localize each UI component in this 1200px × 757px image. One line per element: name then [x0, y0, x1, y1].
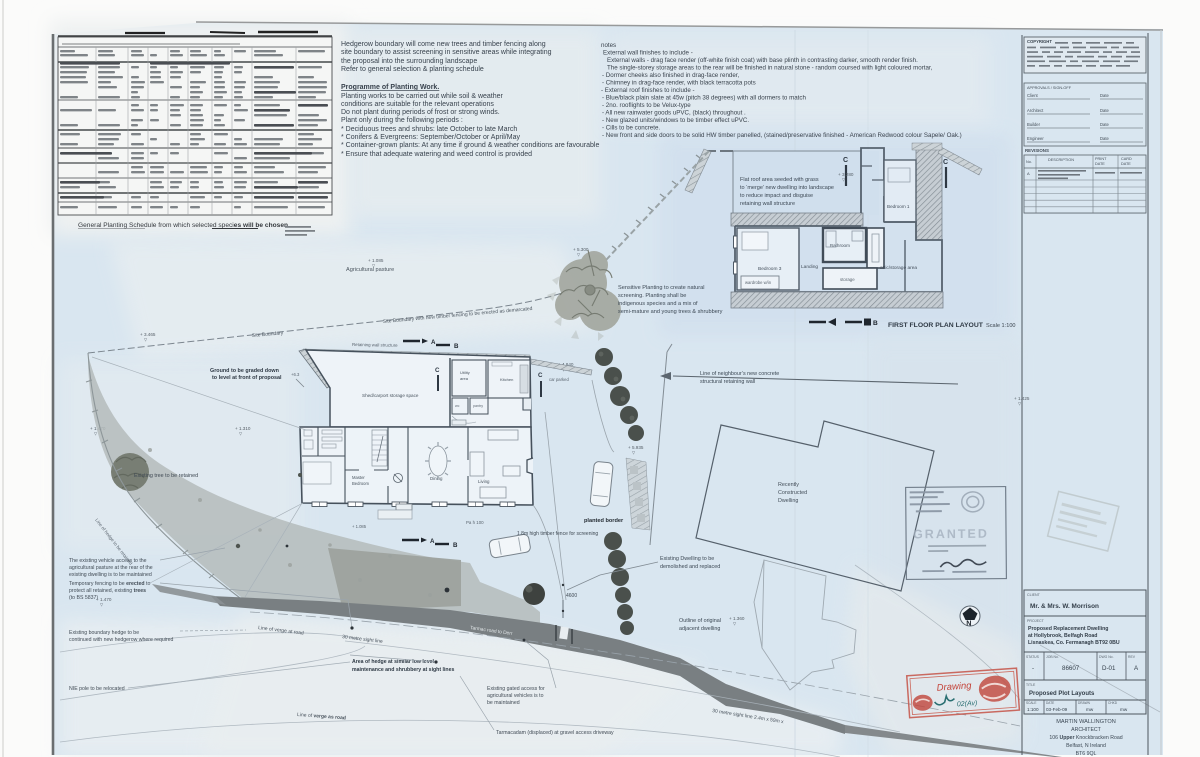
svg-text:pantry: pantry: [473, 404, 483, 408]
svg-text:* Deciduous trees and shrubs:: * Deciduous trees and shrubs: late Octob…: [341, 126, 517, 133]
svg-text:Sensitive Planting to create n: Sensitive Planting to create natural: [618, 285, 704, 291]
svg-text:+ 1.360: + 1.360: [729, 616, 745, 621]
svg-text:- 2no. rooflights to be Velux-: - 2no. rooflights to be Velux-type: [602, 102, 691, 109]
svg-text:1:100: 1:100: [1027, 707, 1039, 712]
svg-text:REV: REV: [1128, 655, 1136, 659]
svg-text:Master: Master: [352, 475, 365, 480]
svg-text:C: C: [538, 372, 543, 379]
svg-text:- New front and side doors to: - New front and side doors to be solid H…: [602, 132, 962, 139]
svg-text:Builder: Builder: [1027, 122, 1041, 127]
svg-text:Belfast, N Ireland: Belfast, N Ireland: [1066, 743, 1106, 749]
svg-text:agricultural vehicles is to: agricultural vehicles is to: [487, 693, 544, 699]
svg-text:Programme of Planting Work.: Programme of Planting Work.: [341, 84, 439, 91]
svg-text:STATUS: STATUS: [1026, 655, 1040, 659]
svg-text:Agricultural pasture: Agricultural pasture: [346, 267, 394, 273]
svg-text:- All new rainwater goods uPVC: - All new rainwater goods uPVC, (black) …: [602, 110, 746, 117]
svg-text:SCALE: SCALE: [1026, 701, 1036, 705]
svg-text:Proposed Plot Layouts: Proposed Plot Layouts: [1029, 691, 1095, 697]
svg-text:demolished and replaced: demolished and replaced: [660, 564, 720, 570]
svg-text:car parked: car parked: [549, 377, 569, 382]
svg-text:Bedroom 1: Bedroom 1: [887, 204, 910, 209]
svg-text:structural retaining wall: structural retaining wall: [700, 379, 755, 385]
svg-text:+ 1.085: + 1.085: [368, 258, 384, 263]
svg-text:CHKD: CHKD: [1108, 701, 1118, 705]
svg-text:- Blue/black plain slate at 45: - Blue/black plain slate at 45w (pitch 3…: [602, 95, 806, 102]
svg-text:TITLE: TITLE: [1026, 683, 1036, 687]
svg-text:JOB No.: JOB No.: [1046, 655, 1059, 659]
svg-text:The existing vehicle access to: The existing vehicle access to the: [69, 558, 147, 564]
svg-text:at Hollybrook, Belfagh Road: at Hollybrook, Belfagh Road: [1028, 633, 1097, 639]
svg-text:Constructed: Constructed: [778, 490, 807, 496]
svg-text:Mr. & Mrs. W. Morrison: Mr. & Mrs. W. Morrison: [1030, 603, 1099, 610]
svg-text:Shed/carport storage space: Shed/carport storage space: [362, 393, 419, 398]
svg-text:- New glazed units/windows to: - New glazed units/windows to be timber …: [602, 117, 749, 124]
svg-text:maintenance and shrubbery at s: maintenance and shrubbery at sight lines: [352, 667, 454, 673]
svg-text:planted border: planted border: [584, 518, 624, 524]
svg-text:Existing boundary hedge to be: Existing boundary hedge to be: [69, 630, 139, 636]
svg-text:- Chimney in drag-face render,: - Chimney in drag-face render, with blac…: [602, 80, 756, 87]
svg-text:wardrobe w/in: wardrobe w/in: [745, 280, 772, 285]
svg-text:Existing tree to be retained: Existing tree to be retained: [134, 473, 198, 479]
svg-text:+ 1.085: + 1.085: [352, 524, 367, 529]
svg-text:* Conifers & Evergreens: Septe: * Conifers & Evergreens: September/Octob…: [341, 134, 520, 141]
svg-text:Lisnaskea, Co. Fermanagh BT92: Lisnaskea, Co. Fermanagh BT92 0BU: [1028, 640, 1120, 646]
svg-text:wc: wc: [455, 404, 460, 408]
svg-text:General Planting Schedule from: General Planting Schedule from which sel…: [78, 222, 288, 229]
svg-text:B: B: [454, 343, 459, 350]
svg-text:notes: notes: [601, 42, 616, 49]
svg-text:Scale 1:100: Scale 1:100: [986, 323, 1016, 329]
svg-text:to reduce impact and disguise: to reduce impact and disguise: [740, 193, 813, 199]
svg-text:Flat roof area seeded with gra: Flat roof area seeded with grass: [740, 177, 819, 183]
svg-text:Landing: Landing: [801, 264, 818, 270]
svg-text:NIE pole to be relocated: NIE pole to be relocated: [69, 686, 125, 692]
svg-text:Do not plant during periods of: Do not plant during periods of frost or …: [341, 109, 500, 116]
svg-text:D-01: D-01: [1102, 665, 1116, 672]
svg-text:+ 5.300: + 5.300: [573, 247, 589, 252]
svg-text:ARCHITECT: ARCHITECT: [1071, 727, 1102, 733]
svg-text:Date: Date: [1100, 136, 1110, 141]
svg-text:86607: 86607: [1062, 665, 1080, 672]
svg-text:N: N: [966, 619, 971, 628]
svg-text:A: A: [431, 339, 436, 346]
svg-text:Hedgerow boundary will come ne: Hedgerow boundary will come new trees an…: [341, 41, 546, 48]
svg-text:+ 5.935: + 5.935: [628, 445, 644, 450]
svg-text:B: B: [873, 320, 878, 327]
svg-text:DATE: DATE: [1046, 701, 1054, 705]
svg-text:APPROVALS / SIGN-OFF: APPROVALS / SIGN-OFF: [1027, 86, 1072, 90]
svg-text:the proposal into the surround: the proposal into the surrounding landsc…: [341, 58, 477, 65]
svg-text:existing dwelling is to be mai: existing dwelling is to be maintained: [69, 572, 152, 578]
svg-text:Proposed Replacement Dwelling: Proposed Replacement Dwelling: [1028, 626, 1108, 632]
svg-text:Ground to be graded down: Ground to be graded down: [210, 368, 279, 374]
svg-text:+6.3: +6.3: [291, 372, 300, 377]
svg-text:- Dormer cheeks also finished: - Dormer cheeks also finished in drag-fa…: [602, 72, 740, 79]
svg-text:adjacent dwelling: adjacent dwelling: [679, 626, 720, 632]
svg-text:Architect: Architect: [1027, 108, 1044, 113]
svg-text:mw: mw: [1086, 707, 1094, 712]
svg-text:Recently: Recently: [778, 482, 799, 488]
svg-text:attic/storage area: attic/storage area: [880, 265, 917, 271]
svg-text:03-Feb-09: 03-Feb-09: [1046, 707, 1068, 712]
svg-text:No.: No.: [1026, 160, 1032, 164]
svg-text:be maintained: be maintained: [487, 700, 520, 706]
svg-text:External walls - drag face ren: External walls - drag face render (off-w…: [607, 57, 918, 64]
svg-text:Refer to general selection & p: Refer to general selection & planting sc…: [341, 66, 484, 73]
svg-text:Date: Date: [1100, 122, 1110, 127]
svg-text:Utility: Utility: [460, 370, 470, 375]
svg-text:MARTIN WALLINGTON: MARTIN WALLINGTON: [1056, 719, 1116, 725]
svg-text:DATE: DATE: [1095, 162, 1105, 166]
svg-text:02(Av): 02(Av): [957, 700, 978, 708]
svg-text:Living: Living: [478, 479, 490, 484]
svg-text:4600: 4600: [566, 593, 577, 599]
svg-text:C: C: [943, 159, 948, 166]
svg-text:screening. Planting shall: screening. Planting shall be: [618, 293, 686, 299]
svg-text:to ‘merge’ new dwelling into l: to ‘merge’ new dwelling into landscape: [740, 185, 834, 191]
svg-text:DWG No.: DWG No.: [1099, 655, 1114, 659]
svg-text:area: area: [460, 376, 469, 381]
svg-text:-: -: [1032, 665, 1034, 672]
svg-text:Existing gated access for: Existing gated access for: [487, 686, 545, 692]
svg-text:Date: Date: [1100, 108, 1110, 113]
svg-text:storage: storage: [840, 277, 855, 282]
svg-text:1.8m high timber fence for scr: 1.8m high timber fence for screening: [517, 531, 598, 537]
svg-text:Outline of original: Outline of original: [679, 618, 721, 624]
svg-text:Existing Dwelling to be: Existing Dwelling to be: [660, 556, 714, 562]
svg-text:Client: Client: [1027, 93, 1039, 98]
svg-text:The single-storey storage area: The single-storey storage areas to the r…: [607, 65, 933, 72]
svg-text:Line of neighbour’s new concre: Line of neighbour’s new concrete: [700, 371, 779, 377]
svg-text:Tarmacadam (displaced) at grav: Tarmacadam (displaced) at gravel access …: [496, 730, 614, 736]
svg-text:A: A: [1027, 171, 1030, 176]
svg-text:mw: mw: [1120, 707, 1128, 712]
svg-text:conditions are suitable for th: conditions are suitable for the relevant…: [341, 101, 494, 108]
svg-text:DATE: DATE: [1121, 162, 1131, 166]
svg-text:106 Upper Knockbracken Road: 106 Upper Knockbracken Road: [1049, 735, 1122, 741]
svg-text:CARD: CARD: [1121, 157, 1132, 161]
svg-text:semi-mature and young trees &: semi-mature and young trees & shrubbery: [618, 309, 723, 315]
svg-text:COPYRIGHT: COPYRIGHT: [1027, 39, 1052, 44]
svg-text:BT6 9QL: BT6 9QL: [1076, 751, 1097, 757]
svg-text:Date: Date: [1100, 93, 1110, 98]
svg-text:FIRST FLOOR PLAN LAYOUT: FIRST FLOOR PLAN LAYOUT: [888, 322, 984, 329]
svg-text:REVISIONS: REVISIONS: [1025, 148, 1049, 153]
svg-text:DRAWN: DRAWN: [1078, 701, 1091, 705]
svg-text:(to BS 5837): (to BS 5837): [69, 595, 98, 601]
svg-text:retaining wall structure: retaining wall structure: [740, 201, 795, 207]
svg-text:PROJECT: PROJECT: [1027, 619, 1045, 623]
svg-text:site boundary to assist screen: site boundary to assist screening in sen…: [341, 49, 552, 56]
svg-text:Temporary fencing to be erecte: Temporary fencing to be erected to: [69, 581, 150, 587]
svg-text:protect all retained, existing: protect all retained, existing trees: [69, 588, 146, 594]
svg-text:A: A: [430, 538, 435, 545]
svg-text:indigenous species and a mix o: indigenous species and a mix of: [618, 301, 698, 307]
svg-text:agricultural pasture at the re: agricultural pasture at the rear of the: [69, 565, 153, 571]
svg-text:Area of hedge at similar low l: Area of hedge at similar low level: [352, 659, 434, 665]
svg-text:Pa h 100: Pa h 100: [466, 520, 484, 525]
svg-text:External wall finishes to incl: External wall finishes to include -: [603, 50, 693, 57]
svg-text:C: C: [435, 367, 440, 374]
svg-text:C: C: [843, 157, 848, 164]
svg-text:Engineer: Engineer: [1027, 136, 1044, 141]
svg-text:Kitchen: Kitchen: [500, 377, 513, 382]
svg-text:to level at front of proposal: to level at front of proposal: [212, 375, 282, 381]
svg-text:CLIENT: CLIENT: [1027, 593, 1041, 597]
svg-text:* Container-grown plants: At a: * Container-grown plants: At any time if…: [341, 142, 599, 149]
svg-text:+ 1.310: + 1.310: [235, 426, 251, 431]
svg-text:Dwelling: Dwelling: [778, 498, 798, 504]
svg-text:+ 3.280: + 3.280: [838, 172, 854, 177]
svg-text:Retaining wall structure: Retaining wall structure: [352, 342, 398, 348]
svg-text:- Cills to be concrete.: - Cills to be concrete.: [602, 125, 660, 132]
svg-text:GRANTED: GRANTED: [913, 527, 989, 542]
svg-text:Bedroom: Bedroom: [352, 481, 370, 486]
svg-text:- External roof finishes to in: - External roof finishes to include -: [601, 87, 695, 94]
svg-text:+ 3.465: + 3.465: [140, 332, 156, 337]
svg-text:Bedroom 3: Bedroom 3: [758, 266, 782, 272]
svg-text:DESCRIPTION: DESCRIPTION: [1048, 158, 1074, 162]
svg-text:* Ensure that adequate waterin: * Ensure that adequate watering and weed…: [341, 151, 532, 158]
svg-text:continued with new hedgerow wh: continued with new hedgerow where requir…: [69, 637, 174, 643]
svg-text:Plant only during the followin: Plant only during the following periods …: [341, 117, 463, 124]
svg-text:+ 1.470: + 1.470: [96, 597, 112, 602]
svg-text:B: B: [453, 542, 458, 549]
svg-text:Dining: Dining: [430, 476, 443, 481]
svg-text:Planting works to be carried o: Planting works to be carried out while s…: [341, 93, 504, 100]
svg-text:PRINT: PRINT: [1095, 157, 1107, 161]
